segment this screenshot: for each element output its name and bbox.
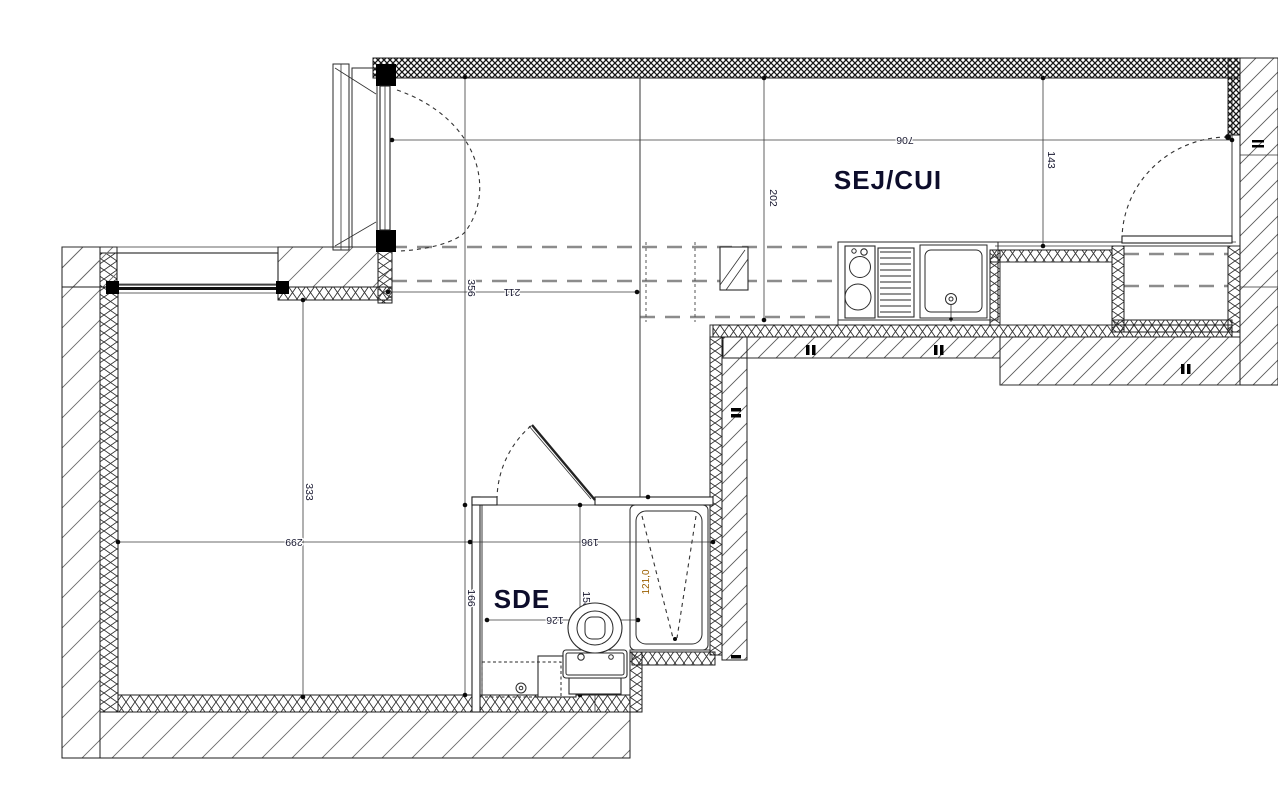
washbasin-icon <box>482 656 576 697</box>
dim-text-706: 706 <box>896 134 914 146</box>
dim-text-126: 126 <box>546 614 564 626</box>
window-recess <box>117 253 278 285</box>
insulation-left <box>100 253 118 712</box>
dim-text-166: 166 <box>465 589 477 607</box>
balcony-edge <box>333 64 377 250</box>
right-door-swing-arc <box>1122 137 1228 240</box>
sde-door-leaf-edge <box>529 426 591 499</box>
sde-door <box>497 425 595 500</box>
tick-icon <box>1252 145 1264 148</box>
entrance-door <box>333 64 480 252</box>
label-sej-cui: SEJ/CUI <box>834 165 942 195</box>
insulation-step <box>630 652 642 712</box>
floor-plan-page: 706 143 202 211 356 166 333 299 196 158 … <box>0 0 1278 800</box>
dimension-dots <box>116 75 1235 700</box>
insulation-niche-left <box>1112 246 1124 332</box>
dimension-annotations: 706 143 202 211 356 166 333 299 196 158 … <box>116 75 1235 700</box>
kitchen-fixtures <box>720 242 998 322</box>
insulation-window-pier <box>278 287 392 300</box>
insulation-corridor <box>710 337 722 655</box>
partition-sde-top-right <box>595 497 713 505</box>
dim-text-196: 196 <box>581 536 599 548</box>
right-door-leaf <box>1122 236 1232 243</box>
tick-icon <box>1181 364 1185 374</box>
insulation-niche-right <box>1228 246 1240 332</box>
window-hinge-right <box>276 281 289 294</box>
partition-sde-top-left <box>472 497 497 505</box>
wall-corridor-mass <box>722 337 747 660</box>
label-sde: SDE <box>494 584 550 614</box>
tick-icon <box>934 345 938 355</box>
dim-text-333: 333 <box>303 483 315 501</box>
walls <box>62 58 1278 758</box>
entrance-door-swing-arc <box>397 90 480 251</box>
dim-text-299: 299 <box>285 536 303 548</box>
shower-level-text: 121,0 <box>641 569 652 594</box>
wall-kitchen-mass-right <box>1000 337 1240 385</box>
insulation-entry-jamb <box>378 247 392 303</box>
dim-text-356: 356 <box>465 279 477 297</box>
shower-tray-icon: 121,0 <box>630 505 708 650</box>
insulation-shower-bottom <box>632 652 715 665</box>
duct-recess-insulation-top <box>990 250 1112 262</box>
duct-recess-void <box>1000 262 1112 325</box>
kitchen-sink-icon <box>920 245 987 322</box>
wall-right-party <box>1240 58 1278 385</box>
insulation-niche-bottom <box>1112 320 1232 332</box>
wall-top-facade <box>373 58 1240 78</box>
wall-left-exterior <box>62 247 100 758</box>
drainboard-icon <box>878 248 914 317</box>
tick-icon <box>812 345 816 355</box>
dim-text-143: 143 <box>1045 151 1057 169</box>
dim-text-202: 202 <box>767 189 779 207</box>
door-frame-top <box>376 64 396 86</box>
tick-icon <box>731 414 741 418</box>
window-lower-room <box>106 253 289 294</box>
dim-text-211: 211 <box>503 286 520 298</box>
service-duct-icon <box>720 247 748 290</box>
wall-bottom-exterior <box>100 712 630 758</box>
window-hinge-left <box>106 281 119 294</box>
tick-icon <box>1252 140 1264 143</box>
floor-plan-drawing: 706 143 202 211 356 166 333 299 196 158 … <box>0 0 1278 800</box>
tick-icon <box>731 655 741 659</box>
tick-icon <box>1187 364 1191 374</box>
floor-entry-niche <box>1124 246 1228 320</box>
sde-door-swing-arc <box>497 425 532 500</box>
wall-right-stub <box>1228 58 1240 135</box>
wall-junction-ticks <box>731 140 1264 659</box>
right-door-hinge <box>1225 134 1231 140</box>
wall-kitchen-mass-left <box>723 337 1000 358</box>
interior-door-right <box>1122 134 1232 243</box>
door-frame-bottom <box>376 230 396 252</box>
cooktop-icon <box>845 246 875 318</box>
tick-icon <box>731 408 741 412</box>
wall-window-pier-right <box>278 247 392 287</box>
tick-icon <box>806 345 810 355</box>
sde-door-leaf <box>532 425 595 500</box>
tick-icon <box>940 345 944 355</box>
